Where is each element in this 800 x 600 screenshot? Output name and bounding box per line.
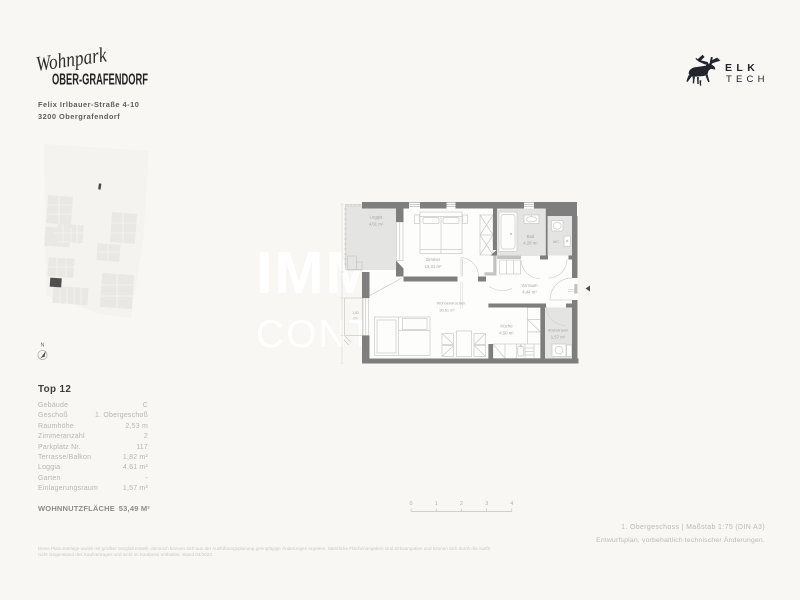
svg-text:1,57 m²: 1,57 m² [551, 335, 566, 340]
svg-text:0: 0 [409, 501, 412, 507]
svg-text:4: 4 [510, 501, 513, 507]
svg-text:Küche: Küche [500, 324, 513, 329]
svg-text:Wohnen/Kochen: Wohnen/Kochen [437, 301, 466, 306]
svg-text:Abstellraum: Abstellraum [548, 328, 569, 333]
svg-text:m²: m² [353, 317, 358, 321]
svg-text:1,82: 1,82 [352, 311, 359, 315]
svg-text:3: 3 [485, 501, 488, 507]
svg-text:Zimmer: Zimmer [426, 257, 441, 262]
svg-text:TECH: TECH [726, 74, 769, 85]
svg-text:N: N [41, 343, 45, 349]
svg-text:1: 1 [435, 501, 438, 507]
svg-text:OBER-GRAFENDORF: OBER-GRAFENDORF [52, 72, 148, 89]
svg-text:Vorraum: Vorraum [521, 283, 538, 288]
svg-text:4,61 m²: 4,61 m² [369, 222, 384, 227]
svg-text:4,44 m²: 4,44 m² [522, 290, 537, 295]
svg-text:WC: WC [553, 240, 560, 244]
svg-text:4,50 m²: 4,50 m² [499, 331, 514, 336]
svg-text:Bad: Bad [527, 234, 535, 239]
svg-text:2: 2 [460, 501, 463, 507]
svg-text:13,31 m²: 13,31 m² [425, 264, 443, 269]
svg-text:4,28 m²: 4,28 m² [523, 241, 538, 246]
svg-text:ELK: ELK [725, 62, 759, 74]
svg-text:Loggia: Loggia [370, 215, 384, 220]
svg-text:30,61 m²: 30,61 m² [439, 308, 455, 313]
